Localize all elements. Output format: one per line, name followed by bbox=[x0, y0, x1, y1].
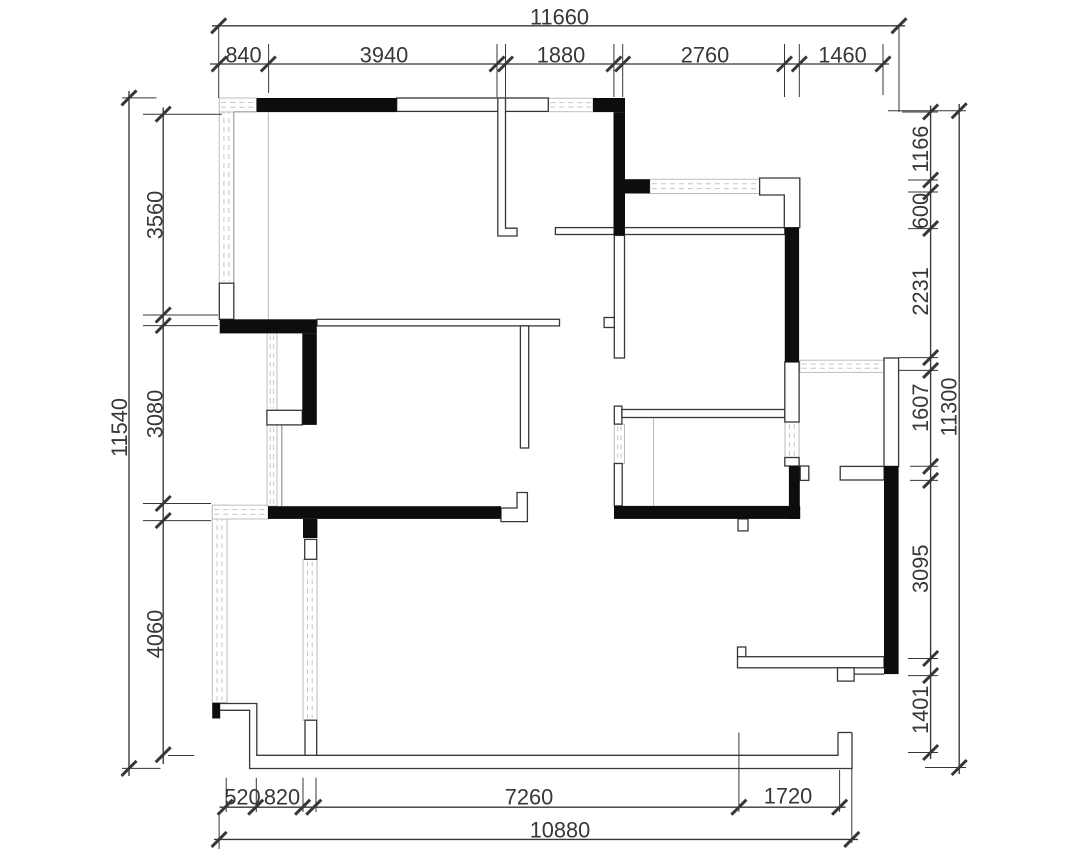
svg-text:11540: 11540 bbox=[107, 398, 132, 457]
svg-text:520: 520 bbox=[224, 785, 260, 810]
svg-text:1460: 1460 bbox=[818, 42, 867, 67]
svg-text:2231: 2231 bbox=[908, 267, 933, 316]
svg-text:600: 600 bbox=[908, 193, 933, 229]
svg-text:2760: 2760 bbox=[681, 42, 730, 67]
svg-text:3080: 3080 bbox=[143, 390, 168, 439]
svg-text:1880: 1880 bbox=[537, 42, 586, 67]
svg-text:3560: 3560 bbox=[143, 191, 168, 240]
svg-text:4060: 4060 bbox=[143, 610, 168, 659]
svg-text:11660: 11660 bbox=[530, 4, 589, 29]
svg-text:840: 840 bbox=[225, 42, 261, 67]
svg-text:3095: 3095 bbox=[908, 545, 933, 594]
svg-text:11300: 11300 bbox=[937, 378, 962, 437]
svg-text:7260: 7260 bbox=[505, 785, 554, 810]
svg-text:1720: 1720 bbox=[764, 784, 813, 809]
svg-text:10880: 10880 bbox=[530, 818, 591, 843]
svg-text:1607: 1607 bbox=[908, 384, 933, 433]
svg-text:1401: 1401 bbox=[908, 686, 933, 735]
svg-text:3940: 3940 bbox=[360, 42, 409, 67]
svg-text:820: 820 bbox=[264, 785, 300, 810]
svg-text:1166: 1166 bbox=[908, 126, 933, 173]
